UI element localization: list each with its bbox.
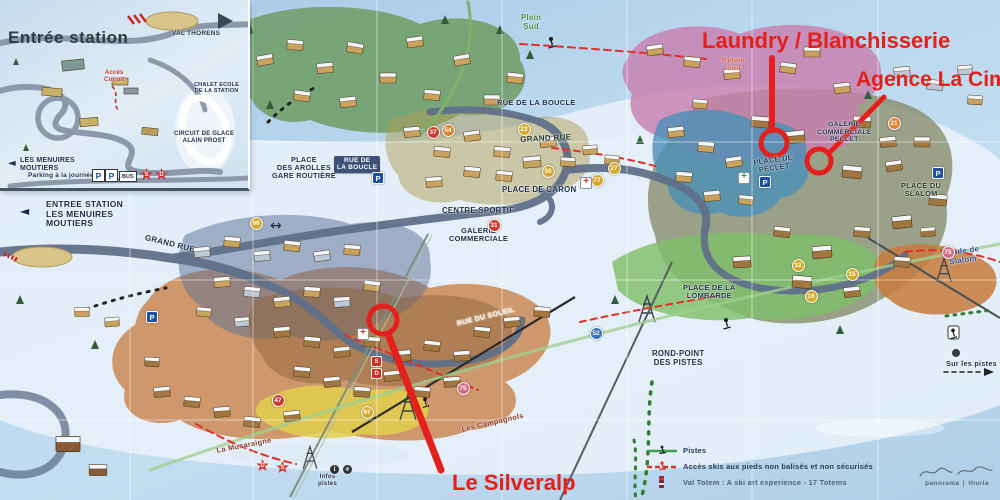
building-marker: 50 <box>542 165 555 178</box>
info-icon: ❄ <box>342 464 353 475</box>
parking-icon: P <box>146 311 158 323</box>
zone-peclet-teal <box>652 110 808 217</box>
zone-orange-main <box>112 267 550 441</box>
building-marker: 66 <box>250 217 263 230</box>
inset-val-thorens-label: VAL THORENS <box>172 30 220 37</box>
legend-row-pistes: Pistes <box>645 442 975 458</box>
zone-green-top <box>238 7 526 133</box>
inset-circuit-glace-label: CIRCUIT DE GLACE ALAIN PROST <box>174 131 234 144</box>
map-label: ROND-POINT DES PISTES <box>652 350 704 367</box>
map-label: Les Campagnols <box>461 412 525 434</box>
map-label: Infos pistes <box>318 474 337 487</box>
inset-title: Entrée station <box>8 28 128 48</box>
first-aid-cross-icon: + <box>580 177 592 189</box>
map-label: RUE DU SOLEIL <box>456 306 516 328</box>
zone-slalom-olive <box>648 88 952 323</box>
laundry-circle <box>761 130 787 156</box>
two-way-arrow-icon: ↔ <box>270 218 282 234</box>
info-icon: i <box>329 464 340 475</box>
zone-green-lower <box>612 233 882 320</box>
inset-direction-label: LES MENUIRES MOUTIERS <box>20 157 75 173</box>
map-label: Plein Sud <box>521 14 541 31</box>
credit-left: panorama <box>925 480 959 487</box>
agence-pointer-line <box>831 97 884 151</box>
map-label: GALERIE COMMERCIALE <box>449 227 508 244</box>
building-marker: 97 <box>361 406 374 419</box>
first-aid-cross-icon: + <box>357 328 369 340</box>
map-label: Retour Sud <box>722 57 746 72</box>
zone-navy-quarter <box>179 215 431 341</box>
inset-parking-caption: Parking à la journée <box>28 172 94 179</box>
inset-map-entree-station: Entrée station VAL THORENS Accès Circuit… <box>0 0 250 191</box>
silveralp-circle <box>369 306 397 334</box>
parking-icon: P <box>372 172 384 184</box>
map-label: PLACE DE LA LOMBARDE <box>683 284 736 301</box>
building-marker: 23 <box>518 123 531 136</box>
building-marker: 31 <box>488 219 501 232</box>
resort-map: ENTREE STATION LES MENUIRES MOUTIERSGRAN… <box>0 0 1000 500</box>
zone-orange-right <box>874 244 997 314</box>
west-arrow-icon: ◄ <box>20 204 29 218</box>
map-label: GRAND RUE <box>520 133 572 145</box>
inset-parking-icon: P <box>92 169 105 182</box>
tunnel-oval <box>12 247 72 267</box>
map-label: PLACE DES AROLLES GARE ROUTIÈRE <box>272 156 336 180</box>
agence-circle <box>807 149 831 173</box>
building-marker: 15 <box>846 268 859 281</box>
map-label: GALERIE COMMERCIALE PECLET <box>817 121 872 144</box>
building-marker: 12 <box>792 259 805 272</box>
building-marker: 54 <box>442 124 455 137</box>
map-label: GRAND RUE <box>144 234 196 255</box>
piste-line-icon <box>645 444 683 456</box>
credit-right: thuria <box>968 480 988 487</box>
totem-icon <box>645 475 683 489</box>
esf-badge: D <box>256 459 269 472</box>
annotation-agence-la-cime: Agence La Cime <box>856 68 1000 92</box>
map-label: CENTRE SPORTIF <box>442 207 514 216</box>
signature-squiggle <box>916 464 996 480</box>
building-marker: 77 <box>591 174 604 187</box>
parking-icon: P <box>932 167 944 179</box>
map-label: RUE DE LA BOUCLE <box>497 99 576 107</box>
zone-khaki-quarter <box>385 108 589 205</box>
map-label: RUE DE LA BOUCLE <box>334 156 380 173</box>
building-marker: 21 <box>888 117 901 130</box>
building-marker: 75 <box>942 246 955 259</box>
esf-badge: S <box>276 461 289 474</box>
map-label: PLACE DE PECLET <box>753 153 795 175</box>
inset-acces-circuit-label: Accès Circuit <box>104 70 124 83</box>
map-label: Stade de Slalom <box>944 245 981 267</box>
inset-parking-icon: P <box>105 169 118 182</box>
map-label: PLACE DE CARON <box>502 186 576 195</box>
map-label: Sur les pistes <box>946 360 997 368</box>
inset-chalet-ecole-label: CHALET ECOLE DE LA STATION <box>194 82 239 94</box>
credit-signature: panorama thuria <box>916 464 998 487</box>
annotation-laundry: Laundry / Blanchisserie <box>702 28 950 54</box>
map-label: La Musaraigne <box>216 436 272 455</box>
esf-badge: D <box>371 368 382 379</box>
ski-access-icon <box>645 460 683 472</box>
building-marker: 16 <box>805 290 818 303</box>
pharmacy-cross-icon: + <box>738 172 750 184</box>
annotation-marks <box>369 58 884 470</box>
esf-badge: S <box>371 356 382 367</box>
building-marker: 47 <box>272 394 285 407</box>
silveralp-pointer-line <box>388 334 441 470</box>
inset-west-arrow-icon: ◄ <box>8 158 16 169</box>
building-marker: 75 <box>457 382 470 395</box>
zone-brown-quarter <box>249 288 512 386</box>
building-marker: 52 <box>590 327 603 340</box>
parking-icon: P <box>759 176 771 188</box>
building-marker: 37 <box>427 126 440 139</box>
map-label: PLACE DU SLALOM <box>901 182 941 199</box>
map-label: ENTREE STATION LES MENUIRES MOUTIERS <box>46 200 123 229</box>
zone-yellow <box>256 385 428 438</box>
annotation-le-silveralp: Le Silveralp <box>452 470 576 496</box>
inset-bus-icon: BUS <box>119 171 137 182</box>
building-marker: 27 <box>608 162 621 175</box>
